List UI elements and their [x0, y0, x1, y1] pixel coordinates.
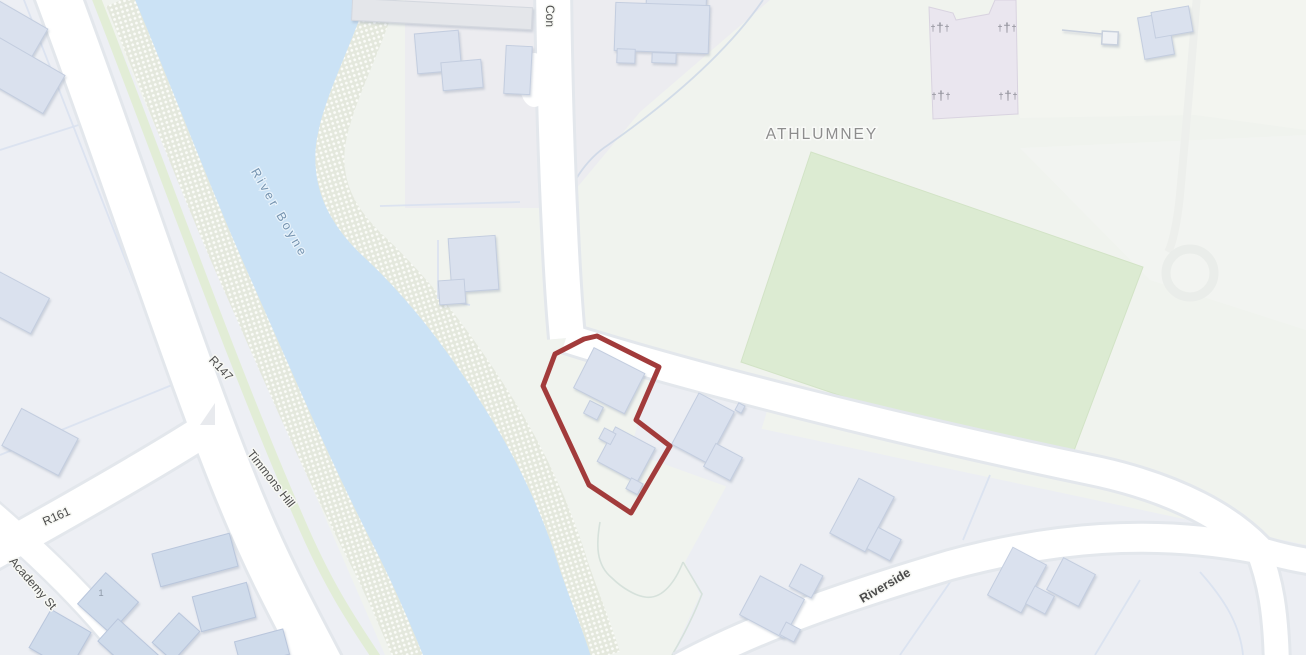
building: [652, 53, 676, 64]
cemetery-cross-icon: † † †: [998, 88, 1017, 103]
building: [438, 279, 466, 305]
cross-icon: †: [1003, 20, 1010, 35]
building: [504, 45, 532, 94]
house-number-label: 1: [98, 588, 103, 599]
cross-icon: †: [937, 88, 944, 103]
cemetery-cross-icon: † † †: [930, 20, 949, 35]
cross-icon: †: [998, 91, 1003, 101]
cross-icon: †: [931, 91, 936, 101]
building: [614, 2, 710, 53]
cross-icon: †: [997, 23, 1002, 33]
cross-icon: †: [1011, 23, 1016, 33]
cemetery-cross-icon: † † †: [931, 88, 950, 103]
cross-icon: †: [944, 23, 949, 33]
cross-icon: †: [930, 23, 935, 33]
road-con: [553, 0, 567, 338]
cross-icon: †: [1004, 88, 1011, 103]
building: [441, 59, 483, 90]
road-label-con: Con: [543, 5, 557, 27]
map-canvas[interactable]: † † † † † † † † † † † † ATHLUMNEY River …: [0, 0, 1306, 655]
building-outline: [1102, 31, 1119, 45]
cross-icon: †: [936, 20, 943, 35]
cross-icon: †: [1012, 91, 1017, 101]
map-svg: † † † † † † † † † † † † ATHLUMNEY River …: [0, 0, 1306, 655]
building: [617, 49, 635, 64]
road-fork-east: [1258, 549, 1306, 562]
cross-icon: †: [945, 91, 950, 101]
cemetery-cross-icon: † † †: [997, 20, 1016, 35]
place-label-athlumney: ATHLUMNEY: [766, 126, 878, 143]
